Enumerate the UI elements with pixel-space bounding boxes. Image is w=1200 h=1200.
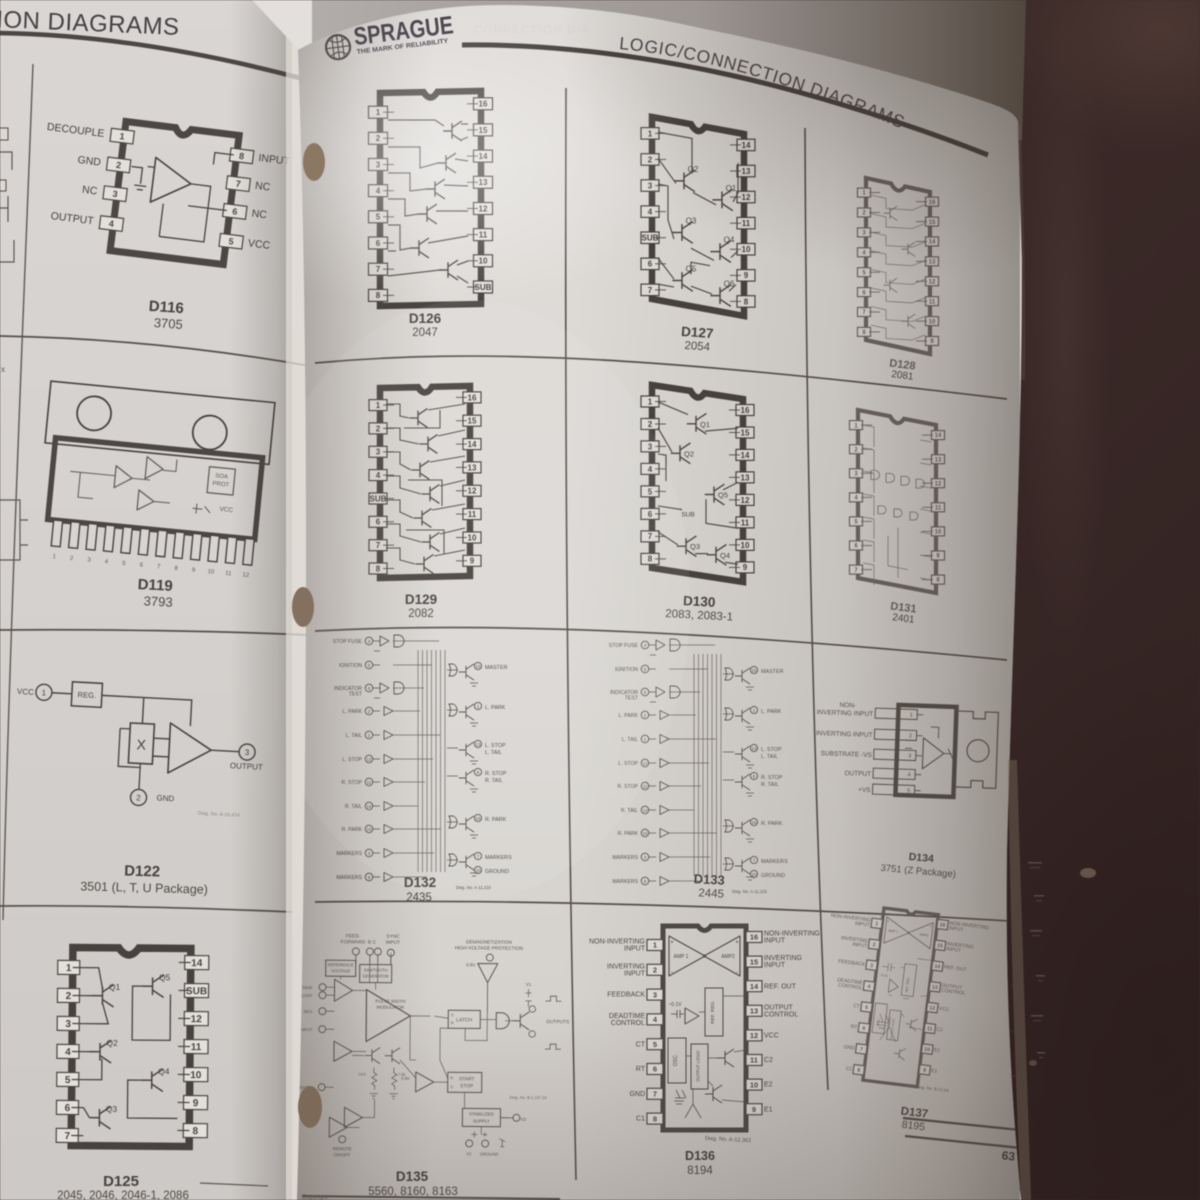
- svg-text:SUB: SUB: [186, 986, 207, 997]
- svg-text:D122: D122: [124, 863, 160, 881]
- svg-text:6: 6: [65, 1103, 71, 1114]
- svg-text:10: 10: [207, 569, 215, 576]
- svg-text:3705: 3705: [153, 315, 183, 332]
- svg-text:x: x: [1, 365, 5, 374]
- svg-text:SOA: SOA: [215, 473, 228, 480]
- svg-text:HIGH-VOLTAGE PROTECTION: HIGH-VOLTAGE PROTECTION: [455, 945, 524, 952]
- svg-text:Q5: Q5: [159, 972, 171, 982]
- svg-text:NC: NC: [81, 184, 98, 198]
- svg-text:10: 10: [190, 1070, 202, 1081]
- svg-text:X: X: [136, 736, 147, 753]
- svg-text:5: 5: [65, 1075, 71, 1086]
- svg-text:9: 9: [193, 1098, 199, 1109]
- svg-text:14: 14: [191, 958, 203, 969]
- svg-text:3793: 3793: [143, 593, 173, 609]
- svg-text:4: 4: [65, 1047, 71, 1058]
- svg-text:V1: V1: [526, 982, 532, 987]
- svg-text:REG.: REG.: [77, 690, 96, 700]
- svg-text:8: 8: [192, 1126, 198, 1137]
- svg-text:12: 12: [191, 1014, 203, 1025]
- svg-text:Q3: Q3: [106, 1104, 118, 1114]
- svg-text:11: 11: [191, 1042, 202, 1053]
- svg-text:Q2: Q2: [106, 1038, 118, 1048]
- svg-text:7: 7: [64, 1131, 70, 1142]
- svg-text:2: 2: [66, 991, 72, 1002]
- svg-text:DEMAGNETIZATION: DEMAGNETIZATION: [466, 939, 512, 945]
- svg-text:1: 1: [66, 963, 72, 974]
- svg-text:Q4: Q4: [158, 1066, 170, 1076]
- svg-text:0.6V: 0.6V: [466, 962, 475, 967]
- svg-text:2045, 2046, 2046-1, 2086: 2045, 2046, 2046-1, 2086: [57, 1190, 189, 1200]
- svg-text:Q1: Q1: [109, 982, 121, 992]
- svg-text:D125: D125: [103, 1173, 139, 1190]
- svg-text:GND: GND: [156, 793, 174, 803]
- svg-text:D119: D119: [137, 576, 173, 595]
- svg-text:VCC: VCC: [17, 687, 35, 697]
- svg-text:3: 3: [65, 1019, 71, 1030]
